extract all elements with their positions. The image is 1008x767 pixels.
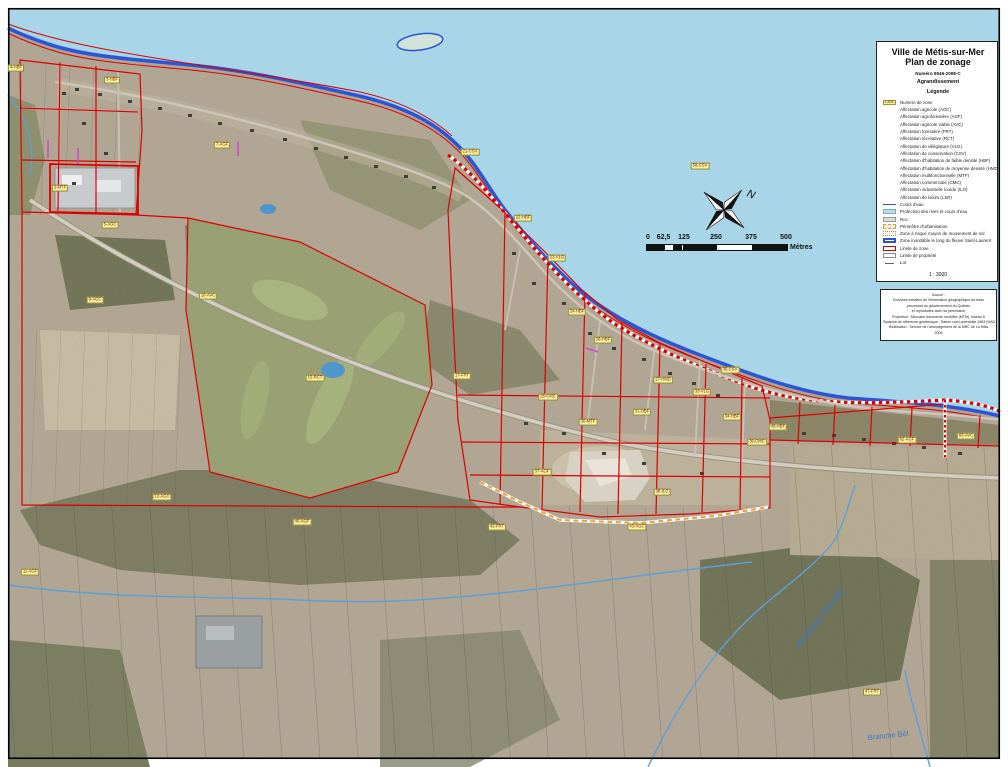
scale-tick: 62,5 (657, 234, 671, 241)
scale-tick: 0 (646, 234, 650, 241)
property-limit-swatch (883, 253, 896, 258)
zoning-map-canvas: N Ruisseau Plourde Branche Bél (0, 0, 1008, 767)
scale-bar-segments (646, 244, 788, 251)
legend-item-affectation: Affectation agricole viable (AVC) (883, 121, 993, 128)
legend-item-affectation: Affectation commerciale (CMC) (883, 179, 993, 186)
legend-item-affectation: Affectation de conservation (CSV) (883, 150, 993, 157)
legend-item-lot: Lot (883, 259, 993, 266)
landslide-risk-swatch (883, 231, 896, 236)
legend-item-affectation: Affectation récréative (RCT) (883, 135, 993, 142)
legend-item-affectation: Affectation forestière (FRT) (883, 128, 993, 135)
legend-item-flood-zone: Zone inondable le long du fleuve Saint-L… (883, 237, 993, 244)
scale-ratio: 1 : 3000 (883, 272, 993, 278)
legend-title: Légende (883, 89, 993, 95)
scale-bar: 0 62,5 125 250 375 500 Mètres (646, 234, 821, 264)
shore-protection-swatch (883, 209, 896, 214)
legend-item-urban-perimeter: Périmètre d'urbanisation (883, 223, 993, 230)
map-title: Ville de Métis-sur-Mer (883, 47, 993, 57)
legend-item-landslide-risk: Zone à risque moyen de mouvement de sol (883, 230, 993, 237)
watercourse-swatch (883, 204, 896, 205)
legend-item-watercourse: Cours d'eau (883, 201, 993, 208)
legend-item-affectation: Affectation de villégiature (VLG) (883, 142, 993, 149)
source-line: 2008 (883, 331, 994, 336)
legend-item-shore-protection: Protection des rives et cours d'eau (883, 208, 993, 215)
legend-item-affectation: Affectation agricole (AGC) (883, 106, 993, 113)
legend-item-rock: Roc (883, 215, 993, 222)
legend-item-affectation: Affectation agroforestière (AGF) (883, 113, 993, 120)
legend-panel: Ville de Métis-sur-Mer Plan de zonage Nu… (876, 41, 998, 282)
scale-tick: 125 (678, 234, 690, 241)
pond (321, 362, 345, 378)
zone-limit-swatch (883, 246, 896, 251)
legend-items: 1-AGC Numéro de zone Affectation agricol… (883, 99, 993, 267)
legend-item-affectation: Affectation d'habitation de moyenne dens… (883, 164, 993, 171)
legend-item-affectation: Affectation industrielle lourde (ILO) (883, 186, 993, 193)
source-line: Réalisation : Service de l'aménagement d… (883, 325, 994, 330)
zone-number-swatch: 1-AGC (883, 100, 896, 105)
legend-item-zone-limit: Limite de zone (883, 245, 993, 252)
map-sheet: N Ruisseau Plourde Branche Bél 4-HBF3-HB… (0, 0, 1008, 767)
legend-item-affectation: Affectation de loisirs (LSR) (883, 194, 993, 201)
plan-number: Numéro 9546-2008-C (883, 71, 993, 76)
legend-item-zone-number: 1-AGC Numéro de zone (883, 99, 993, 106)
legend-item-affectation: Affectation multifonctionnelle (MTF) (883, 172, 993, 179)
scale-unit: Mètres (790, 244, 813, 251)
flood-zone-swatch (883, 238, 896, 243)
scale-tick: 500 (780, 234, 792, 241)
pond-small (260, 204, 276, 214)
legend-item-affectation: Affectation d'habitation de faible densi… (883, 157, 993, 164)
lot-swatch (885, 261, 894, 264)
legend-item-property-limit: Limite de propriété (883, 252, 993, 259)
source-line: Données extraites de l'information géogr… (883, 298, 994, 303)
rock-swatch (883, 217, 896, 222)
sources-panel: Source : Données extraites de l'informat… (880, 289, 997, 341)
scale-tick: 375 (745, 234, 757, 241)
enlargement-label: Agrandissement (883, 79, 993, 85)
map-subtitle: Plan de zonage (883, 57, 993, 67)
scale-tick: 250 (710, 234, 722, 241)
scale-bar-ticks: 0 62,5 125 250 375 500 (646, 234, 821, 243)
urban-perimeter-swatch (883, 224, 896, 229)
